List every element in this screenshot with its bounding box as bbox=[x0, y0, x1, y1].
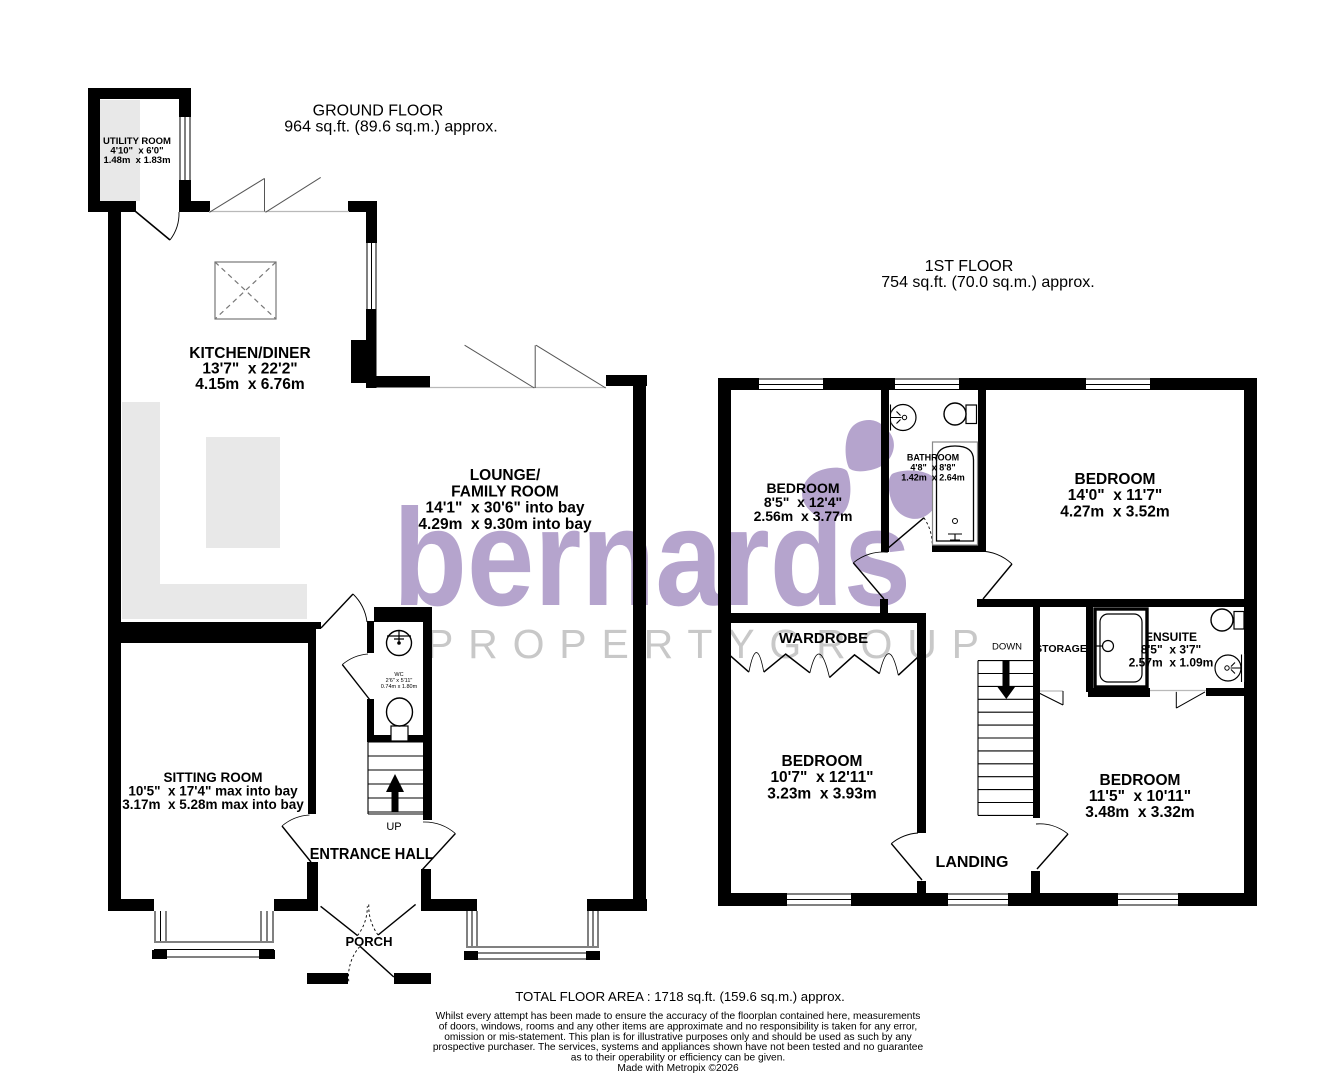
svg-text:LANDING: LANDING bbox=[936, 854, 1009, 871]
svg-text:4'8" x 8'8": 4'8" x 8'8" bbox=[910, 463, 955, 473]
svg-text:TOTAL FLOOR AREA : 1718 sq.ft.: TOTAL FLOOR AREA : 1718 sq.ft. (159.6 sq… bbox=[515, 989, 845, 1004]
svg-text:4.27m x 3.52m: 4.27m x 3.52m bbox=[1060, 504, 1169, 521]
svg-text:LOUNGE/: LOUNGE/ bbox=[470, 467, 541, 484]
svg-text:4.15m x 6.76m: 4.15m x 6.76m bbox=[195, 376, 304, 393]
svg-text:WARDROBE: WARDROBE bbox=[779, 630, 868, 647]
svg-text:2.56m x 3.77m: 2.56m x 3.77m bbox=[754, 508, 853, 524]
svg-text:of doors, windows, rooms and a: of doors, windows, rooms and any other i… bbox=[439, 1021, 917, 1032]
svg-text:BATHROOM: BATHROOM bbox=[907, 453, 959, 463]
svg-text:11'5" x 10'11": 11'5" x 10'11" bbox=[1089, 788, 1191, 805]
svg-text:GROUND FLOOR: GROUND FLOOR bbox=[313, 103, 444, 120]
svg-text:3.17m x 5.28m max into bay: 3.17m x 5.28m max into bay bbox=[122, 797, 304, 812]
svg-text:1.42m x 2.64m: 1.42m x 2.64m bbox=[901, 473, 965, 483]
svg-text:STORAGE: STORAGE bbox=[1035, 643, 1087, 655]
svg-text:Made with Metropix ©2026: Made with Metropix ©2026 bbox=[617, 1063, 739, 1074]
svg-text:as to their operability or eff: as to their operability or efficiency ca… bbox=[571, 1053, 785, 1064]
svg-text:DOWN: DOWN bbox=[992, 642, 1022, 653]
svg-text:4.29m x 9.30m into bay: 4.29m x 9.30m into bay bbox=[418, 516, 592, 533]
svg-text:BEDROOM: BEDROOM bbox=[782, 753, 863, 770]
svg-text:UP: UP bbox=[386, 821, 401, 833]
svg-text:754 sq.ft. (70.0 sq.m.) approx: 754 sq.ft. (70.0 sq.m.) approx. bbox=[881, 274, 1094, 291]
svg-text:0.74m x 1.80m: 0.74m x 1.80m bbox=[381, 684, 418, 690]
svg-text:PORCH: PORCH bbox=[346, 934, 393, 949]
svg-text:1ST FLOOR: 1ST FLOOR bbox=[925, 258, 1014, 275]
svg-text:10'7" x 12'11": 10'7" x 12'11" bbox=[770, 769, 873, 786]
svg-text:Whilst every attempt has been: Whilst every attempt has been made to en… bbox=[436, 1011, 921, 1022]
svg-text:omission or mis-statement. Thi: omission or mis-statement. This plan is … bbox=[444, 1032, 912, 1043]
svg-text:BEDROOM: BEDROOM bbox=[1075, 471, 1156, 488]
svg-text:KITCHEN/DINER: KITCHEN/DINER bbox=[189, 345, 310, 362]
svg-text:2.57m x 1.09m: 2.57m x 1.09m bbox=[1129, 655, 1214, 669]
svg-text:prospective purchaser. The ser: prospective purchaser. The services, sys… bbox=[433, 1042, 924, 1053]
svg-text:14'1" x 30'6" into bay: 14'1" x 30'6" into bay bbox=[425, 500, 584, 517]
svg-text:14'0" x 11'7": 14'0" x 11'7" bbox=[1068, 487, 1162, 504]
svg-text:13'7" x 22'2": 13'7" x 22'2" bbox=[202, 361, 297, 378]
svg-text:FAMILY ROOM: FAMILY ROOM bbox=[451, 484, 559, 501]
svg-text:ENTRANCE HALL: ENTRANCE HALL bbox=[310, 846, 434, 863]
svg-text:1.48m x 1.83m: 1.48m x 1.83m bbox=[103, 155, 170, 166]
svg-text:964 sq.ft. (89.6 sq.m.) approx: 964 sq.ft. (89.6 sq.m.) approx. bbox=[284, 119, 497, 136]
svg-text:3.48m x 3.32m: 3.48m x 3.32m bbox=[1085, 804, 1194, 821]
svg-text:3.23m x 3.93m: 3.23m x 3.93m bbox=[767, 786, 876, 803]
svg-text:BEDROOM: BEDROOM bbox=[1100, 772, 1181, 789]
